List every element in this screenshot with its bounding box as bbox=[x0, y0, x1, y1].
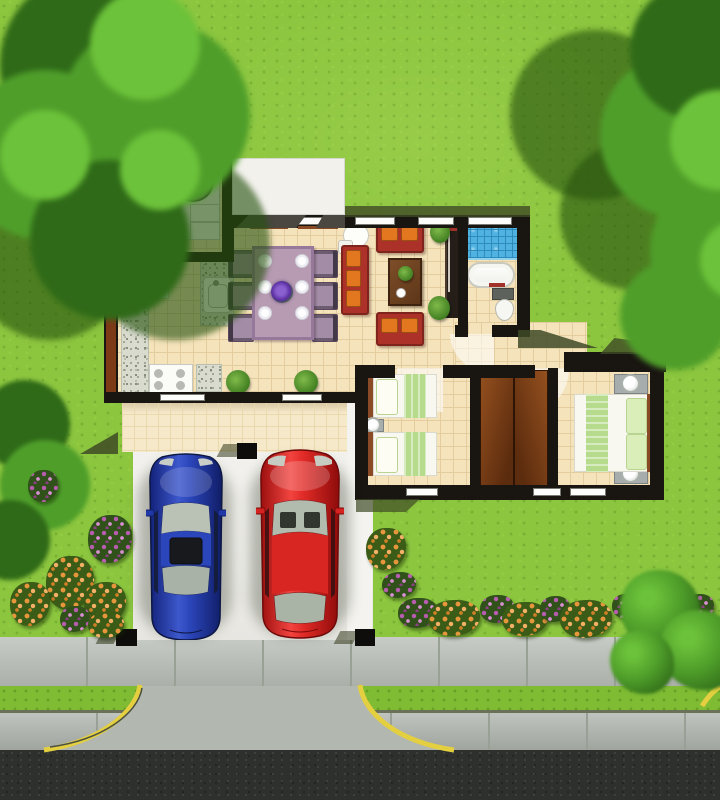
wall-closet-frame-left bbox=[470, 368, 480, 488]
tree-foliage-highlight bbox=[0, 110, 90, 200]
window bbox=[570, 488, 606, 496]
rear-window bbox=[162, 566, 210, 596]
red-car bbox=[256, 448, 344, 640]
bed-pillow bbox=[626, 398, 647, 434]
bed-runner bbox=[586, 394, 608, 472]
hood-highlight bbox=[160, 467, 212, 497]
window bbox=[406, 488, 438, 496]
front-right-bush bbox=[590, 560, 720, 710]
side-mirror bbox=[218, 510, 226, 516]
coffee-cup bbox=[396, 288, 406, 298]
window bbox=[533, 488, 561, 496]
car-roof bbox=[272, 533, 328, 595]
window bbox=[355, 217, 395, 225]
wall-living-bath bbox=[458, 222, 468, 325]
bed-pillow bbox=[376, 379, 398, 415]
tree-top-left bbox=[0, 0, 360, 410]
side-glass bbox=[331, 508, 335, 598]
sofa-cushion bbox=[401, 226, 418, 241]
side-glass bbox=[265, 508, 269, 598]
sofa-cushion bbox=[401, 318, 418, 333]
side-glass bbox=[154, 510, 158, 594]
potted-plant bbox=[428, 296, 450, 320]
floor-plan-scene bbox=[0, 0, 720, 800]
bed-blanket bbox=[404, 432, 426, 476]
wall-bath-bottom bbox=[455, 325, 468, 337]
window bbox=[418, 217, 454, 225]
windshield bbox=[161, 503, 211, 535]
car-seat bbox=[280, 512, 296, 528]
asphalt-road bbox=[0, 750, 720, 800]
table-plant bbox=[398, 266, 413, 281]
car-seat bbox=[304, 512, 320, 528]
bush-foliage bbox=[610, 630, 674, 694]
side-mirror bbox=[335, 508, 344, 514]
closet-door-right bbox=[514, 370, 548, 486]
sunroof bbox=[170, 538, 202, 564]
side-mirror bbox=[146, 510, 154, 516]
carport-post bbox=[355, 629, 375, 646]
wall-wing-bottom bbox=[355, 485, 664, 500]
sofa-cushion bbox=[381, 318, 398, 333]
side-glass bbox=[214, 510, 218, 594]
sofa-cushion bbox=[381, 226, 398, 241]
apron-concrete bbox=[46, 686, 452, 750]
closet-door-left bbox=[480, 370, 514, 486]
tv-screen-edge bbox=[448, 232, 450, 292]
bed-blanket bbox=[404, 374, 426, 418]
side-mirror bbox=[256, 508, 265, 514]
tree-top-right bbox=[470, 0, 720, 380]
tree-foliage-highlight bbox=[120, 130, 200, 210]
bed-pillow bbox=[626, 434, 647, 470]
wall-closet-frame-right bbox=[548, 368, 558, 488]
blue-car bbox=[146, 452, 226, 640]
rear-window bbox=[274, 593, 326, 624]
carport-post bbox=[237, 443, 257, 459]
bed-pillow bbox=[376, 437, 398, 473]
